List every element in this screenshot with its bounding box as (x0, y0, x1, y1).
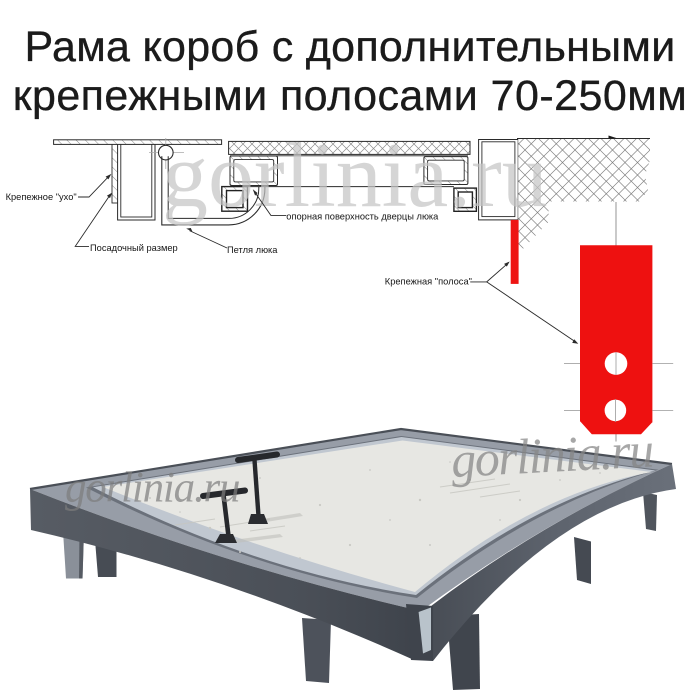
svg-text:Крепежное "ухо": Крепежное "ухо" (6, 192, 77, 202)
svg-text:Петля люка: Петля люка (227, 245, 278, 255)
svg-text:gorlinia.ru: gorlinia.ru (65, 465, 239, 512)
svg-text:gorlinia.ru: gorlinia.ru (450, 421, 655, 487)
svg-text:Посадочный размер: Посадочный размер (90, 243, 178, 253)
svg-text:опорная поверхность дверцы люк: опорная поверхность дверцы люка (286, 212, 439, 222)
svg-text:Крепежная "полоса": Крепежная "полоса" (385, 277, 472, 287)
